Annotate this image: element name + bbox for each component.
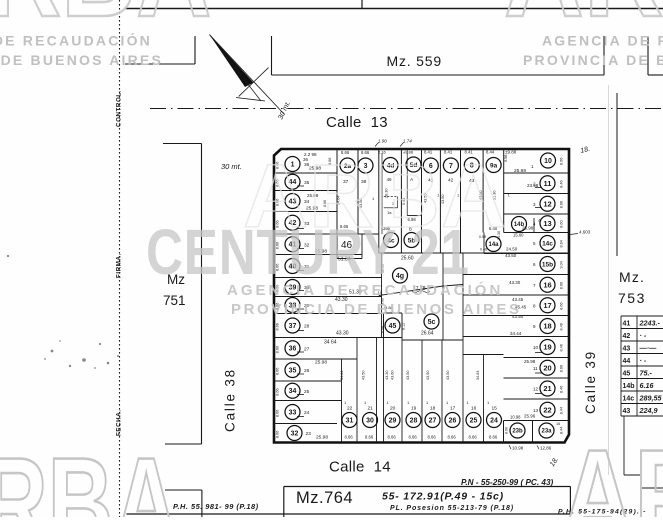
- svg-text:14b: 14b: [623, 383, 635, 390]
- svg-text:8.66: 8.66: [276, 431, 280, 438]
- svg-text:34.44: 34.44: [510, 331, 522, 336]
- svg-text:14b: 14b: [514, 222, 525, 228]
- svg-text:8.66: 8.66: [448, 435, 457, 440]
- svg-text:P.N - 55-250-99 ( PC. 43): P.N - 55-250-99 ( PC. 43): [461, 478, 554, 487]
- svg-text:8.66: 8.66: [560, 201, 564, 208]
- svg-text:Calle 14: Calle 14: [329, 459, 391, 476]
- svg-text:43: 43: [623, 408, 631, 415]
- svg-text:34: 34: [289, 388, 297, 395]
- svg-text:75.-: 75.-: [640, 368, 653, 377]
- svg-text:8.66: 8.66: [345, 435, 354, 440]
- svg-text:Mz.764: Mz.764: [296, 489, 353, 507]
- svg-text:30: 30: [366, 417, 374, 424]
- svg-text:PROVINCIA DE BUENOS AIRES: PROVINCIA DE BUENOS AIRES: [231, 301, 522, 318]
- svg-text:22: 22: [347, 406, 353, 412]
- svg-text:Mz.: Mz.: [619, 269, 645, 285]
- svg-text:35: 35: [289, 367, 297, 374]
- svg-text:27: 27: [429, 417, 437, 424]
- svg-text:25: 25: [470, 417, 478, 424]
- svg-text:CONTROL.: CONTROL.: [116, 90, 123, 127]
- svg-text:17: 17: [450, 406, 456, 412]
- svg-text:26: 26: [449, 417, 457, 424]
- svg-text:43.30: 43.30: [336, 331, 349, 337]
- svg-text:8.66: 8.66: [388, 435, 397, 440]
- svg-text:289,55: 289,55: [639, 393, 663, 402]
- svg-text:P.H. 55. 981- 99 (P.18): P.H. 55. 981- 99 (P.18): [173, 502, 259, 511]
- svg-text:21: 21: [368, 406, 374, 412]
- svg-text:43.30: 43.30: [509, 280, 521, 285]
- svg-text:8.66: 8.66: [428, 435, 437, 440]
- svg-text:· -: · -: [640, 331, 647, 340]
- svg-text:25.98: 25.98: [316, 435, 328, 441]
- svg-text:PROVINCIA DE BUENOS AIRES: PROVINCIA DE BUENOS AIRES: [0, 52, 163, 68]
- svg-text:Mz. 559: Mz. 559: [387, 53, 442, 69]
- svg-text:8.66: 8.66: [560, 158, 564, 165]
- svg-text:6.16: 6.16: [640, 381, 655, 390]
- svg-text:29: 29: [389, 417, 397, 424]
- svg-text:8.66: 8.66: [276, 410, 280, 417]
- svg-text:23b: 23b: [512, 429, 523, 435]
- svg-text:15.60: 15.60: [513, 233, 524, 238]
- svg-text:43.50: 43.50: [446, 370, 450, 380]
- svg-text:4.603: 4.603: [579, 230, 591, 235]
- svg-text:16: 16: [556, 422, 560, 426]
- svg-text:43.50: 43.50: [406, 370, 410, 380]
- svg-text:15: 15: [492, 406, 498, 412]
- svg-text:34.64: 34.64: [340, 370, 344, 380]
- svg-text:8.60: 8.60: [560, 220, 564, 227]
- svg-text:45: 45: [389, 323, 397, 330]
- svg-text:13: 13: [533, 408, 539, 413]
- svg-text:8.66: 8.66: [365, 435, 374, 440]
- svg-text:25.96: 25.96: [524, 414, 536, 419]
- svg-text:14c: 14c: [542, 240, 553, 247]
- svg-text:43.60: 43.60: [391, 370, 395, 380]
- svg-text:32: 32: [291, 430, 299, 437]
- svg-text:12: 12: [533, 387, 539, 392]
- svg-text:8.66: 8.66: [560, 282, 564, 289]
- svg-text:13: 13: [543, 219, 551, 228]
- svg-text:8.66: 8.66: [505, 427, 509, 434]
- svg-text:23: 23: [306, 431, 312, 437]
- svg-text:45: 45: [623, 371, 631, 378]
- svg-text:33: 33: [289, 409, 297, 416]
- svg-text:8.66: 8.66: [469, 435, 478, 440]
- svg-text:751: 751: [163, 293, 186, 308]
- svg-text:8.46: 8.46: [560, 386, 564, 393]
- svg-text:18: 18: [543, 322, 551, 331]
- svg-text:Calle 38: Calle 38: [223, 368, 238, 432]
- svg-text:44: 44: [623, 358, 631, 365]
- svg-text:20: 20: [543, 363, 551, 372]
- svg-text:22: 22: [543, 405, 551, 414]
- svg-text:27: 27: [304, 346, 310, 352]
- svg-text:FIRMA.: FIRMA.: [116, 253, 123, 278]
- svg-text:42: 42: [623, 333, 631, 340]
- svg-text:43.50: 43.50: [362, 370, 366, 380]
- svg-text:15b: 15b: [542, 261, 553, 268]
- svg-text:41: 41: [623, 321, 631, 328]
- svg-text:8.66: 8.66: [276, 388, 280, 395]
- svg-text:CENTURY 21: CENTURY 21: [146, 218, 470, 289]
- svg-text:18: 18: [430, 406, 436, 412]
- svg-text:25.98: 25.98: [524, 359, 536, 364]
- svg-text:10: 10: [544, 158, 552, 165]
- svg-text:8.46: 8.46: [560, 323, 564, 330]
- svg-text:224,9: 224,9: [639, 406, 658, 415]
- svg-text:PROVINCIA DE BUENOS AIRES: PROVINCIA DE BUENOS AIRES: [523, 52, 663, 68]
- svg-text:PL. Posesion 55-213-79 (P.18): PL. Posesion 55-213-79 (P.18): [390, 505, 514, 512]
- svg-text:AGENCIA DE RECAUDACIÓN: AGENCIA DE RECAUDACIÓN: [0, 32, 152, 49]
- svg-text:20: 20: [390, 406, 396, 412]
- svg-text:AR: AR: [561, 422, 663, 517]
- svg-text:AGENCIA DE RECAUDACIÓN: AGENCIA DE RECAUDACIÓN: [227, 281, 503, 299]
- svg-text:8.12: 8.12: [402, 323, 406, 330]
- svg-text:28: 28: [304, 324, 310, 330]
- svg-text:16: 16: [543, 280, 551, 289]
- svg-text:24: 24: [304, 410, 310, 416]
- svg-text:8.64: 8.64: [560, 240, 564, 247]
- svg-text:9.04: 9.04: [560, 261, 564, 268]
- svg-text:28: 28: [410, 417, 418, 424]
- svg-text:· -: · -: [640, 356, 647, 365]
- svg-text:24.50: 24.50: [506, 247, 518, 252]
- svg-text:16: 16: [471, 406, 477, 412]
- svg-text:23a: 23a: [541, 429, 552, 435]
- svg-text:753: 753: [618, 290, 646, 306]
- svg-text:—·—: —·—: [639, 343, 658, 352]
- svg-text:12.86: 12.86: [540, 446, 552, 451]
- svg-text:1.74: 1.74: [403, 139, 412, 144]
- svg-text:34.64: 34.64: [476, 370, 480, 380]
- svg-text:26: 26: [304, 368, 310, 374]
- svg-text:25: 25: [304, 389, 310, 395]
- svg-text:8.66: 8.66: [276, 368, 280, 375]
- svg-text:8.66: 8.66: [276, 346, 280, 353]
- svg-text:8.46: 8.46: [560, 180, 564, 187]
- svg-text:34 64: 34 64: [324, 340, 337, 346]
- svg-text:2243.-: 2243.-: [639, 318, 661, 327]
- svg-text:21: 21: [543, 384, 551, 393]
- svg-text:26.64: 26.64: [421, 331, 434, 337]
- svg-text:43.30: 43.30: [385, 370, 389, 380]
- svg-text:11: 11: [544, 179, 552, 188]
- svg-text:11: 11: [533, 366, 538, 371]
- svg-text:12: 12: [543, 199, 551, 208]
- svg-text:37: 37: [289, 323, 297, 330]
- svg-text:19: 19: [543, 343, 551, 352]
- svg-text:8.44: 8.44: [560, 407, 564, 414]
- svg-text:Calle 13: Calle 13: [326, 114, 388, 131]
- svg-text:8.66: 8.66: [489, 435, 498, 440]
- svg-text:5c: 5c: [428, 319, 436, 326]
- svg-text:19: 19: [411, 406, 417, 412]
- svg-text:10.98: 10.98: [510, 415, 521, 420]
- svg-text:43.50: 43.50: [505, 253, 517, 258]
- svg-text:25.98: 25.98: [315, 360, 327, 366]
- svg-text:8.66: 8.66: [409, 435, 418, 440]
- svg-text:24: 24: [490, 417, 498, 424]
- svg-text:17: 17: [543, 301, 551, 310]
- svg-text:14c: 14c: [623, 396, 635, 403]
- svg-text:10: 10: [533, 345, 539, 350]
- svg-text:Calle 39: Calle 39: [583, 350, 598, 414]
- svg-text:36: 36: [289, 346, 297, 353]
- svg-text:10.98: 10.98: [512, 446, 524, 451]
- svg-text:8.66: 8.66: [276, 323, 280, 330]
- svg-text:25.98: 25.98: [514, 168, 526, 174]
- svg-text:RBA: RBA: [0, 430, 179, 517]
- svg-text:30 mt.: 30 mt.: [221, 162, 242, 171]
- svg-text:55- 172.91(P.49 - 15c): 55- 172.91(P.49 - 15c): [382, 491, 504, 503]
- svg-text:8.66: 8.66: [560, 365, 564, 372]
- svg-text:31: 31: [346, 417, 354, 424]
- svg-text:1.90: 1.90: [378, 139, 387, 144]
- svg-text:8.66: 8.66: [560, 302, 564, 309]
- svg-text:AGENCIA DE RECAUDACIÓN: AGENCIA DE RECAUDACIÓN: [542, 32, 663, 49]
- svg-text:8.46: 8.46: [560, 344, 564, 351]
- svg-text:43: 43: [623, 346, 631, 353]
- svg-text:43.50: 43.50: [426, 370, 430, 380]
- svg-text:0.46: 0.46: [480, 248, 487, 252]
